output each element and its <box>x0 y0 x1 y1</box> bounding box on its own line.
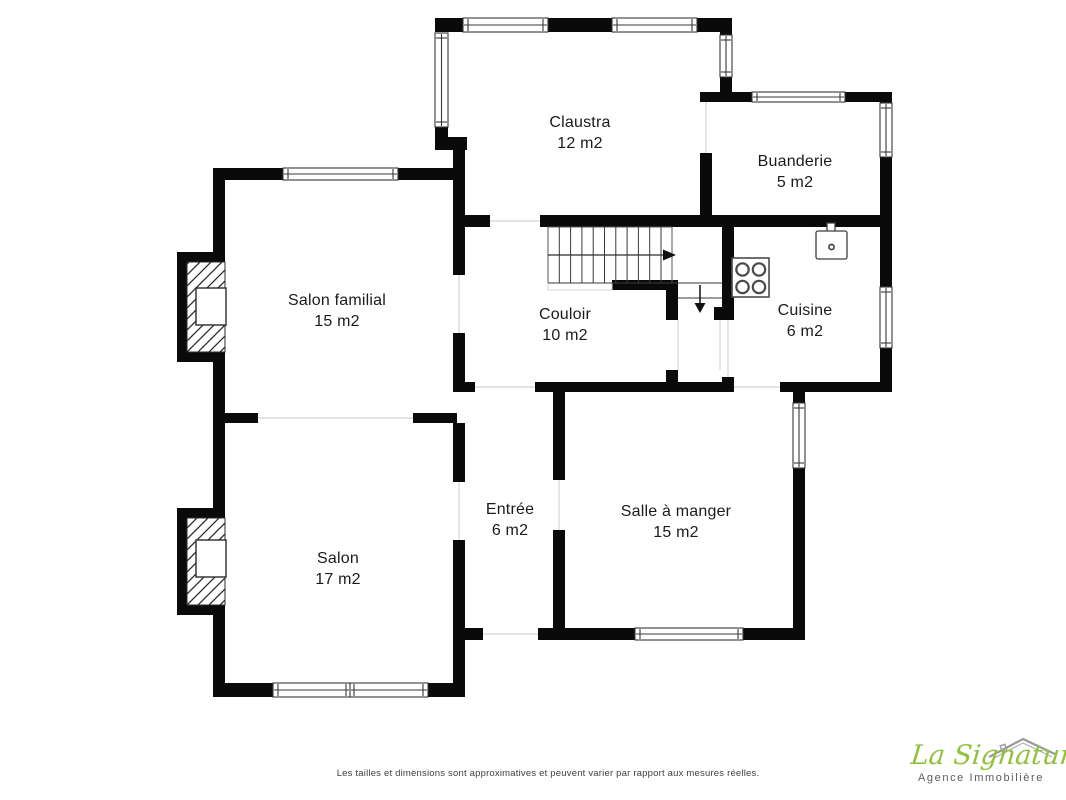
room-name: Salon familial <box>288 290 386 311</box>
room-label: Salon familial 15 m2 <box>288 290 386 332</box>
room-label: Claustra 12 m2 <box>549 112 610 154</box>
room-label: Couloir 10 m2 <box>539 304 591 346</box>
staircase <box>548 227 722 313</box>
room-area: 6 m2 <box>778 321 833 342</box>
window-icon <box>720 35 732 77</box>
room-name: Salon <box>315 548 360 569</box>
agency-logo: La Signature Agence Immobilière <box>903 736 1059 792</box>
room-name: Cuisine <box>778 300 833 321</box>
stove-icon <box>732 258 769 297</box>
up-arrow-icon <box>663 250 676 261</box>
room-name: Entrée <box>486 499 534 520</box>
room-label: Salle à manger 15 m2 <box>621 501 731 543</box>
room-label: Entrée 6 m2 <box>486 499 534 541</box>
room-label: Cuisine 6 m2 <box>778 300 833 342</box>
window-icon <box>283 168 398 180</box>
room-area: 6 m2 <box>486 520 534 541</box>
walls <box>177 18 892 697</box>
window-icon <box>635 628 743 640</box>
logo-tagline-text: Agence Immobilière <box>903 772 1059 784</box>
logo-brand-text: La Signature <box>909 740 1060 771</box>
window-icon <box>752 92 845 102</box>
room-area: 15 m2 <box>621 522 731 543</box>
fireplace-lower-icon <box>187 518 226 605</box>
room-name: Buanderie <box>758 151 833 172</box>
disclaimer-text: Les tailles et dimensions sont approxima… <box>337 768 760 779</box>
window-icon <box>350 683 428 697</box>
window-icon <box>793 403 805 468</box>
down-arrow-icon <box>695 303 706 313</box>
room-label: Buanderie 5 m2 <box>758 151 833 193</box>
room-area: 5 m2 <box>758 172 833 193</box>
room-name: Salle à manger <box>621 501 731 522</box>
room-area: 10 m2 <box>539 325 591 346</box>
room-area: 15 m2 <box>288 311 386 332</box>
floor-plan-drawing <box>0 0 1066 800</box>
floor-plan-page: Claustra 12 m2 Buanderie 5 m2 Salon fami… <box>0 0 1066 800</box>
room-area: 17 m2 <box>315 569 360 590</box>
room-area: 12 m2 <box>549 133 610 154</box>
window-icon <box>273 683 350 697</box>
window-icon <box>612 18 697 32</box>
window-icon <box>463 18 548 32</box>
window-icon <box>435 33 448 127</box>
window-icon <box>880 103 892 157</box>
sink-icon <box>816 223 847 259</box>
room-name: Claustra <box>549 112 610 133</box>
room-label: Salon 17 m2 <box>315 548 360 590</box>
window-icon <box>880 287 892 348</box>
room-name: Couloir <box>539 304 591 325</box>
fireplace-upper-icon <box>187 262 226 352</box>
